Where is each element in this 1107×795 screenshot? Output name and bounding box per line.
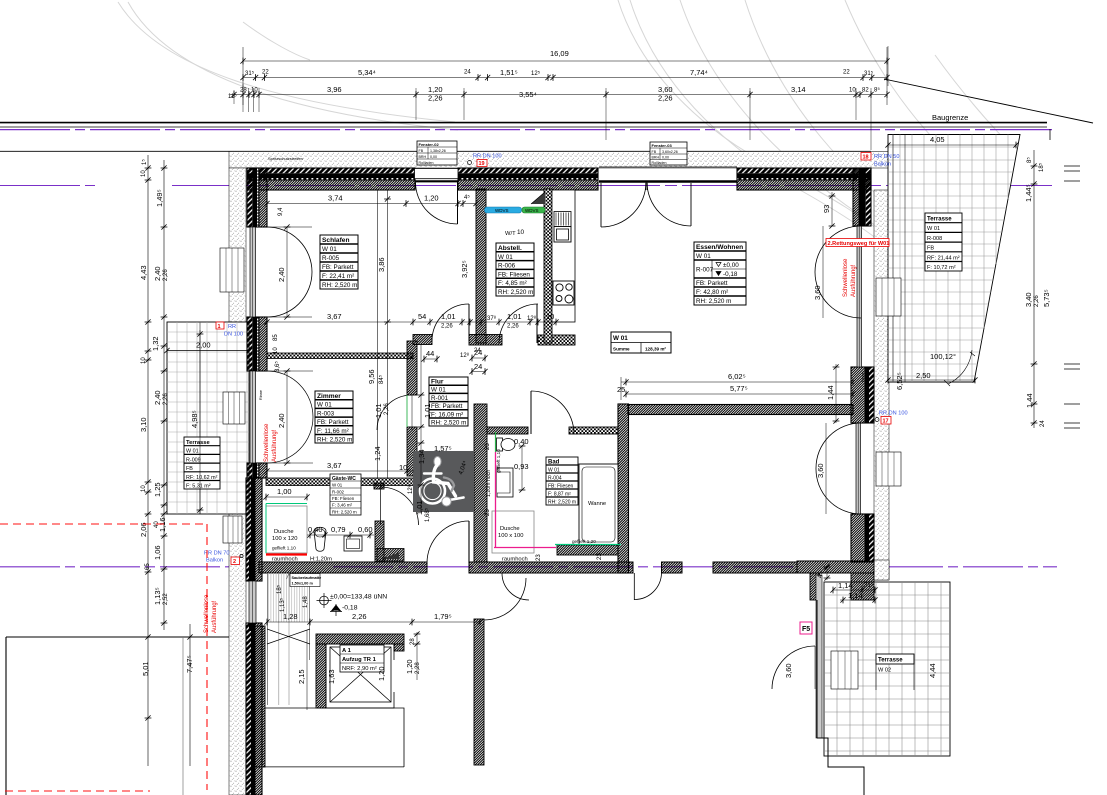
svg-text:1,49⁵: 1,49⁵ (155, 189, 164, 207)
svg-text:1,25: 1,25 (153, 482, 162, 497)
svg-text:RR DN 50: RR DN 50 (874, 154, 900, 160)
svg-text:23: 23 (485, 443, 491, 450)
svg-text:R-002: R-002 (332, 490, 345, 495)
svg-text:2,26: 2,26 (658, 94, 673, 103)
svg-text:16,09: 16,09 (550, 49, 569, 58)
svg-text:1,44: 1,44 (1025, 393, 1034, 408)
svg-text:NRF: 2,90 m²: NRF: 2,90 m² (342, 666, 377, 672)
svg-text:8⁵: 8⁵ (874, 87, 880, 94)
svg-text:11⁵: 11⁵ (228, 93, 237, 100)
svg-text:23: 23 (536, 554, 542, 561)
svg-text:A 1: A 1 (342, 648, 352, 654)
svg-text:12⁸: 12⁸ (527, 315, 537, 322)
svg-text:3,74: 3,74 (328, 194, 343, 203)
svg-text:Sauberlaufmatte: Sauberlaufmatte (292, 576, 322, 580)
svg-text:Dusche: Dusche (500, 526, 520, 532)
svg-text:1,50x1,00 m: 1,50x1,00 m (292, 582, 314, 586)
svg-text:23: 23 (485, 509, 491, 516)
svg-text:5,73⁵: 5,73⁵ (1042, 289, 1051, 307)
svg-text:1,38x2,26: 1,38x2,26 (430, 149, 446, 153)
svg-text:W 01: W 01 (498, 254, 513, 261)
svg-text:Schwellenlose: Schwellenlose (264, 423, 270, 462)
svg-text:RH: 2,520 m: RH: 2,520 m (332, 510, 357, 515)
svg-text:1,01: 1,01 (374, 403, 383, 418)
svg-text:R-001: R-001 (431, 395, 449, 402)
svg-text:1,20: 1,20 (377, 666, 386, 681)
svg-text:1,01: 1,01 (415, 500, 424, 515)
svg-text:1,68⁵: 1,68⁵ (424, 507, 431, 522)
svg-text:Rinne: Rinne (861, 372, 865, 382)
svg-text:Terrasse: Terrasse (186, 440, 211, 446)
svg-text:Abstell.: Abstell. (498, 245, 522, 252)
svg-text:2,26: 2,26 (428, 94, 443, 103)
svg-text:1,51⁵: 1,51⁵ (500, 68, 518, 77)
svg-text:54: 54 (418, 312, 426, 321)
svg-text:W 01: W 01 (548, 468, 560, 474)
svg-text:2,40: 2,40 (277, 267, 286, 282)
svg-text:BRH: BRH (419, 155, 427, 159)
svg-text:1,28: 1,28 (283, 612, 298, 621)
svg-text:Rollladen: Rollladen (652, 161, 667, 165)
svg-text:3,60: 3,60 (784, 663, 793, 678)
svg-text:RF: 21,44 m²: RF: 21,44 m² (927, 255, 960, 261)
svg-text:3,96: 3,96 (327, 85, 342, 94)
svg-text:2,40: 2,40 (277, 413, 286, 428)
svg-text:22: 22 (843, 70, 850, 76)
svg-text:FB: Parkett: FB: Parkett (696, 280, 728, 287)
svg-text:F: 11,66 m²: F: 11,66 m² (317, 428, 349, 435)
svg-text:FB: Fliesen: FB: Fliesen (332, 496, 355, 501)
svg-text:Dusche: Dusche (274, 529, 294, 535)
svg-text:±0,00=133,48 üNN: ±0,00=133,48 üNN (330, 594, 387, 601)
svg-text:Schwellenlose: Schwellenlose (843, 258, 849, 297)
svg-text:10: 10 (251, 88, 258, 94)
svg-text:F: 5,31 m²: F: 5,31 m² (186, 484, 211, 490)
svg-text:3,55⁴: 3,55⁴ (519, 90, 537, 99)
svg-text:24: 24 (474, 362, 482, 371)
svg-text:3,40: 3,40 (1024, 292, 1033, 307)
svg-text:1,01: 1,01 (441, 312, 456, 321)
svg-text:1,00: 1,00 (277, 487, 292, 496)
svg-text:2,26: 2,26 (163, 393, 169, 405)
svg-text:17: 17 (883, 419, 889, 425)
svg-text:2,26: 2,26 (441, 324, 453, 330)
svg-text:10: 10 (517, 229, 525, 236)
svg-text:FB: Fliesen: FB: Fliesen (498, 271, 530, 278)
svg-text:0,40: 0,40 (514, 437, 529, 446)
svg-text:W/T: W/T (505, 231, 516, 237)
svg-text:Balkon: Balkon (206, 558, 223, 564)
svg-text:1,13⁵: 1,13⁵ (279, 597, 286, 612)
svg-text:24: 24 (474, 348, 481, 354)
svg-text:23: 23 (597, 553, 603, 560)
svg-text:W 02: W 02 (878, 668, 891, 674)
svg-text:0,93: 0,93 (514, 462, 529, 471)
svg-text:Zimmer: Zimmer (317, 393, 341, 400)
svg-text:84⁵: 84⁵ (378, 374, 385, 384)
svg-text:Baugrenze: Baugrenze (932, 113, 968, 122)
svg-text:W 01: W 01 (927, 226, 940, 232)
svg-text:3,60x2,26: 3,60x2,26 (662, 150, 678, 154)
svg-text:1,63: 1,63 (327, 669, 336, 684)
svg-text:W 01: W 01 (317, 402, 332, 409)
svg-text:100 x 120: 100 x 120 (272, 536, 297, 542)
svg-text:Gäste-WC: Gäste-WC (332, 476, 356, 482)
svg-text:-0,18: -0,18 (342, 605, 358, 612)
svg-text:W 01: W 01 (186, 449, 199, 455)
svg-text:2,06: 2,06 (139, 522, 148, 537)
svg-text:FB: FB (927, 246, 934, 252)
svg-text:1,79⁵: 1,79⁵ (434, 612, 452, 621)
svg-text:1,44⁵: 1,44⁵ (1024, 184, 1033, 202)
svg-text:1,06: 1,06 (153, 545, 162, 560)
svg-text:Terrasse: Terrasse (878, 658, 903, 664)
svg-text:Flur: Flur (431, 379, 444, 386)
svg-text:10: 10 (273, 347, 279, 354)
svg-text:44: 44 (426, 349, 434, 358)
svg-text:F: 22,41 m²: F: 22,41 m² (322, 273, 354, 280)
svg-text:raumhoch: raumhoch (272, 557, 298, 563)
svg-text:9,4: 9,4 (278, 207, 284, 216)
svg-text:Rollladen: Rollladen (419, 161, 434, 165)
svg-text:geflieft 1,20: geflieft 1,20 (572, 539, 596, 544)
svg-text:WDVS: WDVS (495, 208, 509, 213)
svg-text:Schwellenlose: Schwellenlose (204, 594, 210, 633)
svg-text:65: 65 (145, 563, 151, 570)
svg-text:22: 22 (262, 70, 269, 76)
svg-text:FB: FB (419, 149, 424, 153)
svg-text:Wanne: Wanne (588, 501, 606, 507)
svg-text:RR DN 100: RR DN 100 (879, 411, 908, 417)
svg-text:2.Rettungsweg für W01: 2.Rettungsweg für W01 (828, 241, 890, 247)
svg-text:H:1,20m: H:1,20m (310, 557, 332, 563)
svg-text:FB: FB (186, 466, 193, 472)
svg-text:5,01: 5,01 (141, 661, 150, 676)
svg-text:85: 85 (273, 334, 279, 341)
svg-text:Summe: Summe (613, 347, 630, 352)
svg-text:31⁵: 31⁵ (864, 70, 874, 77)
svg-text:2,00: 2,00 (196, 341, 211, 350)
svg-text:R-007: R-007 (696, 267, 714, 274)
svg-text:4,43: 4,43 (139, 265, 148, 280)
svg-text:F: 42,80 m²: F: 42,80 m² (696, 289, 728, 296)
svg-text:R-004: R-004 (548, 476, 562, 482)
svg-text:10: 10 (141, 357, 147, 364)
svg-text:1,57⁵: 1,57⁵ (434, 444, 452, 453)
svg-text:FB: Parkett: FB: Parkett (317, 419, 349, 426)
svg-text:1,20: 1,20 (405, 659, 414, 674)
svg-text:9,56: 9,56 (367, 369, 376, 384)
svg-text:2,52: 2,52 (163, 593, 169, 605)
svg-text:RH: 2,520 m: RH: 2,520 m (317, 437, 352, 444)
svg-text:3,86: 3,86 (377, 257, 386, 272)
svg-text:RF: 10,62 m²: RF: 10,62 m² (186, 475, 218, 481)
svg-text:3,10: 3,10 (139, 417, 148, 432)
svg-text:2,50: 2,50 (916, 371, 931, 380)
svg-text:RR DN 70: RR DN 70 (204, 551, 230, 557)
svg-text:2,40: 2,40 (153, 390, 162, 405)
svg-text:-0,18: -0,18 (723, 271, 738, 278)
svg-text:W 01: W 01 (322, 246, 337, 253)
svg-text:0,00: 0,00 (662, 156, 669, 160)
svg-text:Balkon: Balkon (874, 162, 891, 168)
svg-text:2,26: 2,26 (507, 324, 519, 330)
svg-text:2,26: 2,26 (352, 612, 367, 621)
svg-text:2,28: 2,28 (415, 662, 421, 674)
svg-text:82: 82 (862, 88, 869, 94)
svg-text:6,02⁵: 6,02⁵ (728, 372, 746, 381)
svg-text:Ausführung!: Ausführung! (212, 600, 218, 633)
svg-text:18: 18 (863, 155, 869, 161)
svg-text:5,77⁵: 5,77⁵ (730, 384, 748, 393)
svg-text:BRH: BRH (652, 156, 660, 160)
svg-text:RH: 2,520 m: RH: 2,520 m (696, 298, 731, 305)
svg-text:RH: 2,520 m: RH: 2,520 m (322, 282, 357, 289)
svg-text:3,67: 3,67 (327, 461, 342, 470)
svg-text:12⁸: 12⁸ (407, 484, 414, 494)
svg-text:RR DN 100: RR DN 100 (473, 154, 502, 160)
svg-text:24: 24 (1040, 420, 1046, 427)
svg-text:128,39 m²: 128,39 m² (645, 347, 666, 352)
svg-text:R-003: R-003 (317, 410, 335, 417)
svg-text:2,26: 2,26 (1034, 295, 1040, 307)
svg-text:4,98⁵: 4,98⁵ (190, 410, 199, 428)
svg-text:31⁵: 31⁵ (245, 70, 255, 77)
svg-text:37⁸: 37⁸ (487, 315, 497, 322)
svg-text:W 01: W 01 (332, 483, 343, 488)
svg-text:10: 10 (141, 170, 147, 177)
svg-text:RR: RR (228, 324, 236, 330)
svg-text:3,6⁵: 3,6⁵ (274, 361, 281, 372)
svg-text:R-008: R-008 (927, 236, 942, 242)
svg-text:1⁵: 1⁵ (141, 159, 148, 165)
svg-text:W 01: W 01 (431, 387, 446, 394)
svg-text:Aufzug TR 1: Aufzug TR 1 (342, 657, 377, 663)
svg-text:10: 10 (546, 312, 554, 321)
svg-text:Schlafen: Schlafen (322, 237, 349, 244)
svg-text:RH: 2,520 m: RH: 2,520 m (431, 420, 466, 427)
svg-text:100 x 100: 100 x 100 (498, 533, 523, 539)
svg-text:1,14: 1,14 (838, 581, 853, 590)
svg-text:41: 41 (818, 571, 824, 578)
svg-text:FB: Parkett: FB: Parkett (322, 264, 354, 271)
svg-text:1,48: 1,48 (303, 596, 309, 608)
svg-text:F: 4,85 m²: F: 4,85 m² (498, 280, 527, 287)
svg-text:Fenster-02: Fenster-02 (419, 142, 440, 147)
svg-text:W 01: W 01 (696, 253, 711, 260)
svg-text:raumhoch: raumhoch (502, 557, 528, 563)
svg-text:5,34⁴: 5,34⁴ (358, 68, 376, 77)
svg-text:FB: Fliesen: FB: Fliesen (548, 484, 574, 490)
svg-text:4,44: 4,44 (928, 663, 937, 678)
svg-text:Ausführung!: Ausführung! (272, 429, 278, 462)
svg-text:1,01: 1,01 (507, 312, 522, 321)
svg-text:F: 3,46 m²: F: 3,46 m² (332, 503, 353, 508)
svg-text:3,67: 3,67 (327, 312, 342, 321)
svg-text:1,44: 1,44 (826, 385, 835, 400)
svg-text:0,79: 0,79 (331, 525, 346, 534)
svg-text:24: 24 (464, 70, 471, 76)
svg-text:1,01: 1,01 (423, 403, 432, 418)
svg-text:8⁵: 8⁵ (1026, 157, 1033, 163)
svg-text:4⁵: 4⁵ (464, 194, 470, 201)
svg-text:0,00: 0,00 (430, 155, 437, 159)
svg-text:FB: FB (652, 150, 657, 154)
svg-text:FB: Parkett: FB: Parkett (431, 403, 463, 410)
svg-text:1: 1 (218, 324, 221, 330)
svg-text:2,26: 2,26 (384, 403, 390, 415)
svg-text:1,20m hoch: 1,20m hoch (486, 470, 492, 497)
svg-text:2: 2 (233, 559, 236, 565)
svg-text:Ausführung!: Ausführung! (851, 264, 857, 297)
svg-text:Bad: Bad (548, 460, 560, 466)
svg-text:Essen/Wohnen: Essen/Wohnen (696, 244, 743, 251)
svg-text:100,12°: 100,12° (930, 352, 956, 361)
svg-text:geflieft 1,10: geflieft 1,10 (496, 449, 501, 473)
svg-text:1,34: 1,34 (417, 449, 426, 464)
svg-text:R-009: R-009 (186, 457, 201, 463)
svg-text:93: 93 (822, 205, 831, 213)
svg-text:F: 10,72 m²: F: 10,72 m² (927, 265, 956, 271)
svg-text:W 01: W 01 (613, 335, 628, 342)
svg-text:1,13⁵: 1,13⁵ (153, 587, 162, 605)
svg-text:DN 100: DN 100 (224, 332, 243, 338)
svg-text:28: 28 (410, 638, 416, 645)
svg-text:10: 10 (399, 463, 407, 472)
svg-text:12⁸: 12⁸ (460, 352, 470, 359)
svg-text:1,20: 1,20 (424, 194, 439, 203)
svg-text:±0,00: ±0,00 (723, 262, 739, 269)
svg-text:7,74⁴: 7,74⁴ (690, 68, 708, 77)
svg-text:2,15: 2,15 (297, 669, 306, 684)
svg-text:10: 10 (141, 485, 147, 492)
svg-text:F: 8,87 m²: F: 8,87 m² (548, 492, 571, 498)
svg-text:F5: F5 (802, 626, 810, 633)
svg-text:2,40: 2,40 (153, 266, 162, 281)
svg-text:F: 16,09 m²: F: 16,09 m² (431, 411, 463, 418)
svg-text:18⁵: 18⁵ (276, 584, 283, 594)
svg-text:1,16: 1,16 (158, 517, 167, 532)
svg-text:Rinne: Rinne (259, 390, 263, 400)
svg-text:4,05: 4,05 (930, 135, 945, 144)
svg-text:31⁵: 31⁵ (864, 582, 874, 589)
svg-text:0,40: 0,40 (308, 525, 323, 534)
svg-text:geflieft 1,10: geflieft 1,10 (272, 546, 296, 551)
svg-text:6,52⁵: 6,52⁵ (895, 372, 904, 390)
svg-text:1,32: 1,32 (151, 336, 160, 351)
svg-text:0,60: 0,60 (358, 525, 373, 534)
svg-text:12⁵: 12⁵ (531, 70, 541, 77)
svg-text:3,60: 3,60 (813, 285, 822, 300)
svg-text:Spritzschutzstreifen: Spritzschutzstreifen (268, 156, 303, 161)
svg-text:RH: 2,520 m: RH: 2,520 m (548, 500, 576, 506)
svg-text:28: 28 (240, 88, 247, 94)
svg-text:R-006: R-006 (498, 263, 516, 270)
svg-text:18⁵: 18⁵ (1038, 162, 1045, 172)
svg-text:WDVS: WDVS (525, 208, 539, 213)
svg-text:2,26: 2,26 (163, 269, 169, 281)
svg-text:19: 19 (479, 161, 485, 167)
svg-text:3,92⁵: 3,92⁵ (460, 260, 469, 278)
svg-text:1,14: 1,14 (848, 591, 863, 600)
svg-text:R-005: R-005 (322, 255, 340, 262)
svg-text:RH: 2,520 m: RH: 2,520 m (498, 289, 533, 296)
svg-text:7,47⁵: 7,47⁵ (185, 655, 194, 673)
svg-text:10: 10 (849, 88, 856, 94)
svg-text:Fenster-03: Fenster-03 (652, 143, 673, 148)
svg-text:3,14: 3,14 (791, 85, 806, 94)
svg-text:3,60: 3,60 (816, 463, 825, 478)
svg-text:1,24: 1,24 (373, 446, 382, 461)
svg-text:Terrasse: Terrasse (927, 217, 952, 223)
